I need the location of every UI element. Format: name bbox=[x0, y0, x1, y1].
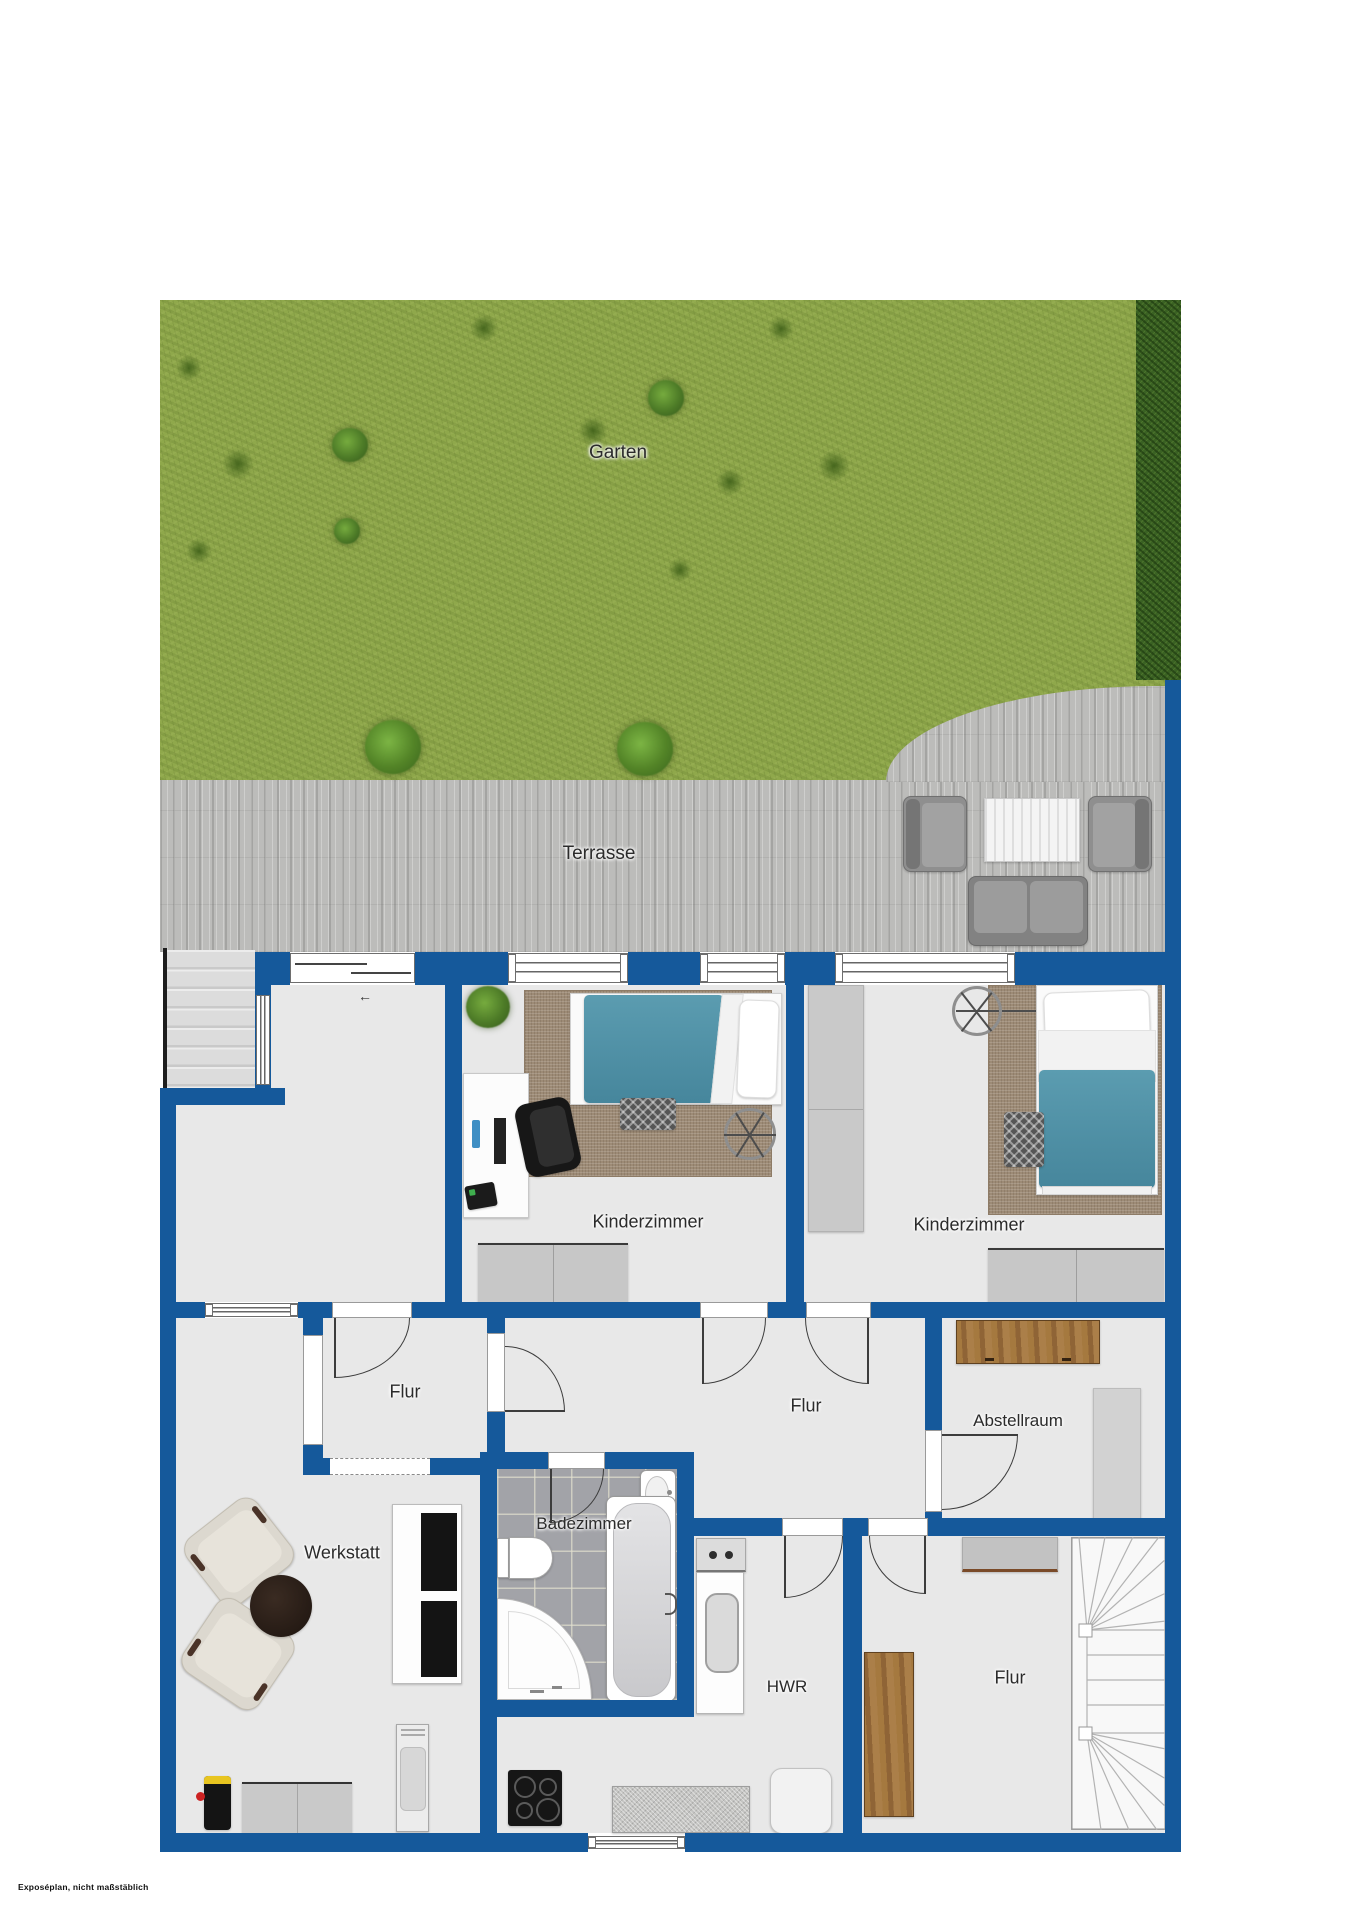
open-passage bbox=[330, 1458, 430, 1475]
door-opening bbox=[332, 1302, 412, 1318]
sink-unit bbox=[696, 1538, 746, 1572]
wall-segment bbox=[480, 1700, 694, 1717]
wall-segment bbox=[480, 1452, 497, 1833]
plant-icon bbox=[466, 986, 510, 1028]
door-opening bbox=[700, 1302, 768, 1318]
round-table bbox=[250, 1575, 312, 1637]
wall-segment bbox=[255, 952, 290, 985]
bed-blanket bbox=[1039, 1070, 1155, 1188]
label-terrasse: Terrasse bbox=[563, 843, 636, 865]
armchair-back bbox=[1135, 799, 1149, 869]
washing-machine bbox=[696, 1572, 744, 1714]
wall-segment bbox=[445, 985, 462, 1302]
door-opening bbox=[925, 1430, 942, 1512]
shelf bbox=[1093, 1388, 1141, 1520]
terrace-armchair bbox=[1088, 796, 1152, 872]
door-opening bbox=[806, 1302, 871, 1318]
grass-tuft bbox=[716, 468, 744, 496]
floorplan-canvas: Garten Terrasse bbox=[0, 0, 1358, 1920]
label-flur-small: Flur bbox=[390, 1382, 421, 1403]
grass-tuft bbox=[668, 558, 692, 582]
terrace-plant-icon bbox=[365, 720, 421, 774]
exterior-stairs bbox=[167, 950, 256, 1088]
wall-left-exterior bbox=[160, 1088, 176, 1852]
grass-tuft bbox=[222, 448, 254, 480]
label-kinderzimmer-right: Kinderzimmer bbox=[913, 1215, 1024, 1236]
toilet-bowl bbox=[509, 1537, 553, 1579]
armchair-seat bbox=[1093, 803, 1135, 867]
wall-segment bbox=[303, 1458, 330, 1475]
grass-tuft bbox=[818, 450, 850, 482]
wall-segment bbox=[768, 1302, 806, 1318]
wall-bottom-exterior bbox=[160, 1833, 588, 1852]
wall-segment bbox=[785, 952, 835, 985]
hedge bbox=[1136, 300, 1181, 680]
wall-segment bbox=[487, 1318, 505, 1333]
label-flur-lower: Flur bbox=[995, 1668, 1026, 1689]
room-entry-floor bbox=[176, 1105, 445, 1302]
sofa-cushion bbox=[974, 881, 1027, 933]
door-leaf bbox=[505, 1410, 565, 1412]
plant-icon bbox=[648, 380, 684, 416]
ceiling-fan-icon bbox=[952, 986, 1002, 1036]
interior-window bbox=[205, 1303, 298, 1317]
stairs-railing bbox=[163, 948, 167, 1090]
label-kinderzimmer-left: Kinderzimmer bbox=[592, 1212, 703, 1233]
door-opening bbox=[782, 1518, 843, 1536]
door-leaf bbox=[334, 1318, 336, 1378]
window bbox=[835, 953, 1015, 983]
toilet bbox=[497, 1538, 509, 1578]
window bbox=[700, 953, 785, 983]
door-opening bbox=[548, 1452, 605, 1469]
wall-segment bbox=[843, 1536, 862, 1833]
door-leaf bbox=[924, 1536, 926, 1594]
monitor-icon bbox=[494, 1118, 506, 1164]
wall-bottom-exterior bbox=[685, 1833, 1181, 1852]
door-opening bbox=[868, 1518, 928, 1536]
grass-tuft bbox=[186, 538, 212, 564]
bed-pillow bbox=[736, 999, 779, 1098]
wall-segment bbox=[786, 985, 804, 1302]
door-opening bbox=[303, 1335, 323, 1445]
terrace-armchair bbox=[903, 796, 967, 872]
grass-tuft bbox=[176, 355, 202, 381]
staircase-icon bbox=[1071, 1537, 1166, 1830]
wall-segment bbox=[160, 1088, 285, 1105]
fridge bbox=[396, 1724, 429, 1832]
door-leaf bbox=[702, 1318, 704, 1384]
bottle-icon bbox=[472, 1120, 480, 1148]
wall-segment bbox=[412, 1302, 700, 1318]
vacuum-cleaner-icon bbox=[204, 1776, 231, 1830]
dresser bbox=[478, 1243, 628, 1302]
boiler bbox=[770, 1768, 832, 1834]
sliding-door bbox=[290, 953, 415, 983]
wall-segment bbox=[694, 1518, 782, 1536]
sofa-cushion bbox=[1030, 881, 1083, 933]
terrace-sofa bbox=[968, 876, 1088, 946]
wall-segment bbox=[928, 1518, 1165, 1536]
disclaimer-text: Exposéplan, nicht maßstäblich bbox=[18, 1882, 149, 1892]
label-garten: Garten bbox=[589, 442, 647, 464]
label-hwr: HWR bbox=[767, 1677, 808, 1697]
wall-segment bbox=[843, 1518, 868, 1536]
counter bbox=[612, 1786, 750, 1833]
terrace-table bbox=[984, 798, 1080, 862]
vacuum-dot bbox=[196, 1792, 205, 1801]
window bbox=[256, 995, 270, 1085]
cooktop bbox=[508, 1770, 562, 1826]
wall-segment bbox=[160, 1302, 205, 1318]
label-flur-main: Flur bbox=[791, 1396, 822, 1417]
terrace-plant-icon bbox=[617, 722, 673, 776]
bed-blanket bbox=[584, 995, 724, 1103]
door-leaf bbox=[784, 1536, 786, 1598]
printer-icon bbox=[464, 1182, 498, 1211]
door-leaf bbox=[942, 1434, 1018, 1436]
wall-segment bbox=[303, 1318, 323, 1335]
shelf bbox=[962, 1537, 1058, 1572]
window bbox=[588, 1836, 685, 1849]
ceiling-fan-icon bbox=[724, 1108, 776, 1160]
armchair-seat bbox=[922, 803, 964, 867]
wood-panel bbox=[864, 1652, 914, 1817]
wall-segment bbox=[871, 1302, 1165, 1318]
armchair-back bbox=[906, 799, 920, 869]
bed-footboard bbox=[1042, 1186, 1152, 1195]
door-leaf bbox=[867, 1318, 869, 1384]
label-abstellraum: Abstellraum bbox=[973, 1411, 1063, 1431]
wall-segment bbox=[1015, 952, 1181, 985]
window bbox=[508, 953, 628, 983]
wardrobe bbox=[808, 985, 864, 1232]
door-opening bbox=[487, 1333, 505, 1412]
wall-segment bbox=[925, 1318, 942, 1430]
door-leaf bbox=[550, 1469, 552, 1523]
grass-tuft bbox=[768, 316, 794, 342]
pouf bbox=[1004, 1112, 1044, 1167]
sliding-door-arrow: ← bbox=[358, 988, 372, 1004]
wall-right-exterior bbox=[1165, 680, 1181, 1852]
label-werkstatt: Werkstatt bbox=[304, 1543, 380, 1564]
plant-icon bbox=[332, 428, 368, 462]
plant-icon bbox=[334, 518, 360, 544]
wall-segment bbox=[415, 952, 508, 985]
grass-tuft bbox=[470, 314, 498, 342]
dresser bbox=[988, 1248, 1164, 1302]
wall-segment bbox=[677, 1452, 694, 1717]
tall-cabinet bbox=[392, 1504, 462, 1684]
sideboard bbox=[956, 1320, 1100, 1364]
wall-segment bbox=[497, 1452, 548, 1469]
pouf bbox=[620, 1098, 676, 1130]
wall-segment bbox=[628, 952, 700, 985]
workbench bbox=[242, 1782, 352, 1833]
wall-segment bbox=[298, 1302, 332, 1318]
